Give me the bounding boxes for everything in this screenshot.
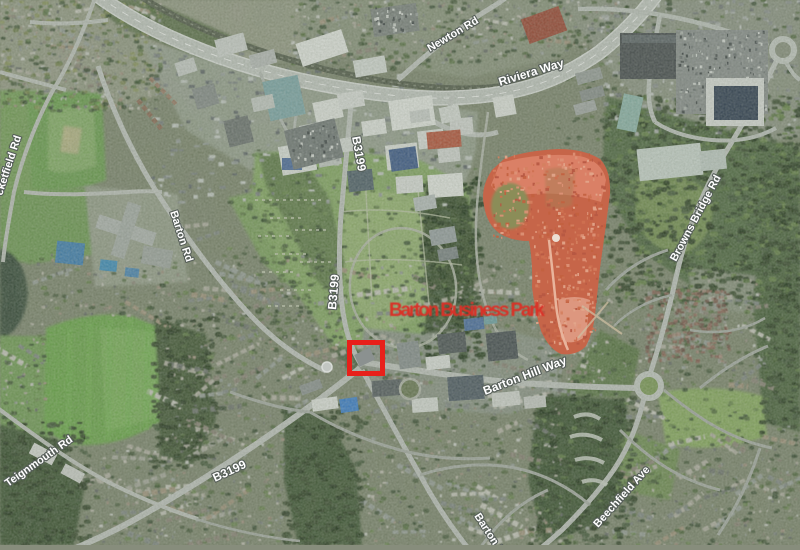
svg-text:Barton Business Park: Barton Business Park bbox=[389, 300, 545, 321]
